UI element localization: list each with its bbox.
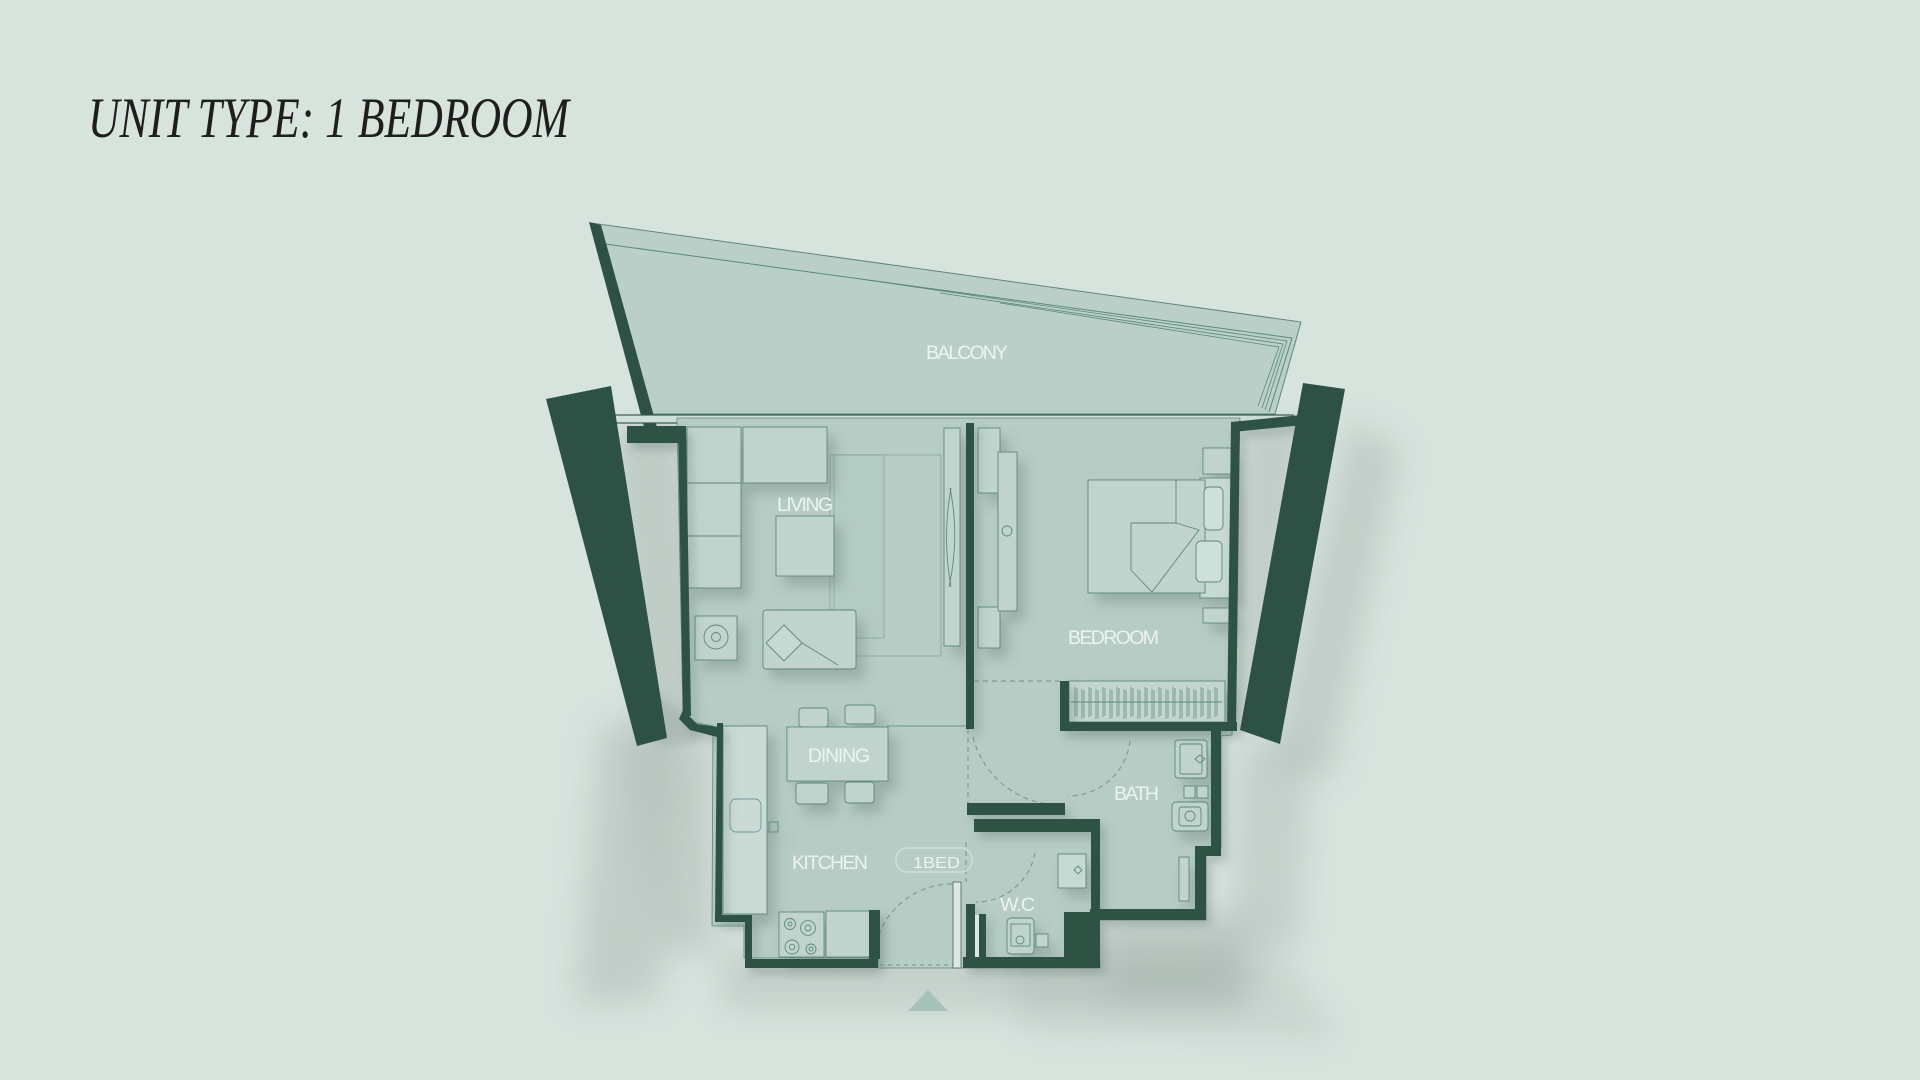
svg-text:BALCONY: BALCONY xyxy=(926,342,1008,364)
svg-text:W.C: W.C xyxy=(1000,894,1035,916)
svg-text:DINING: DINING xyxy=(808,745,870,767)
svg-text:KITCHEN: KITCHEN xyxy=(792,852,868,874)
svg-text:BATH: BATH xyxy=(1114,783,1159,805)
svg-text:1BED: 1BED xyxy=(913,855,960,872)
svg-text:BEDROOM: BEDROOM xyxy=(1068,627,1159,649)
svg-text:LIVING: LIVING xyxy=(777,494,833,516)
svg-text:UNIT TYPE: 1 BEDROOM: UNIT TYPE: 1 BEDROOM xyxy=(88,87,572,150)
